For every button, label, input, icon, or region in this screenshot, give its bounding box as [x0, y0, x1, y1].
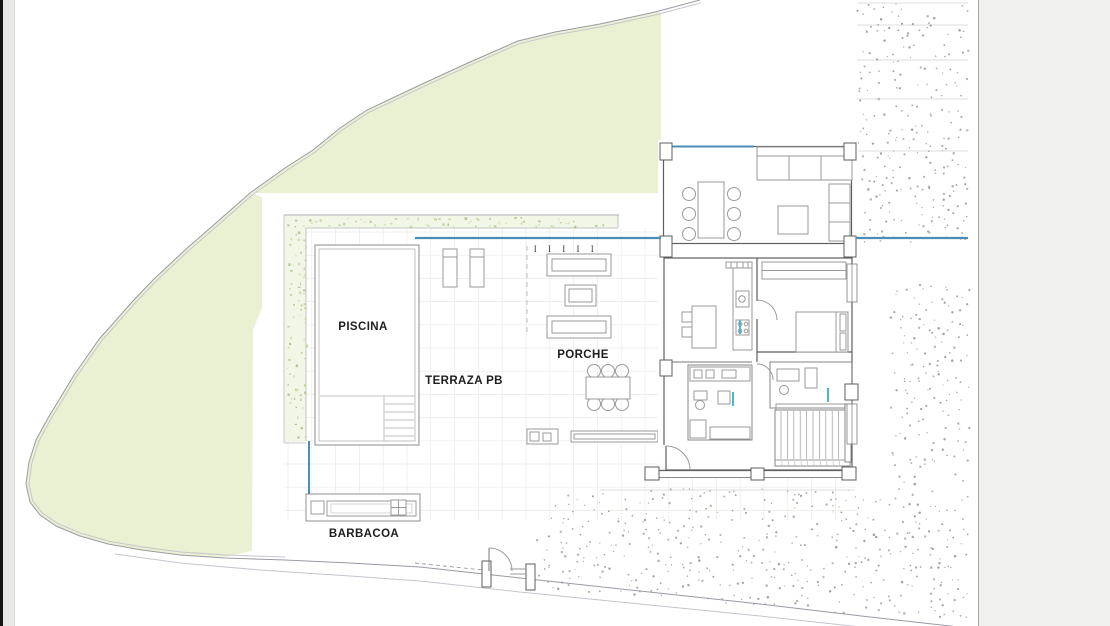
staircase — [775, 404, 851, 466]
hedge-left-band — [285, 228, 306, 442]
outdoor-sofa — [547, 316, 611, 338]
label-porche: PORCHE — [557, 349, 609, 361]
gate-post — [526, 564, 535, 590]
sofa-back — [757, 147, 852, 156]
barbecue-counter — [306, 494, 420, 521]
label-terraza: TERRAZA PB — [425, 375, 503, 387]
dining-table — [698, 182, 724, 238]
outdoor-sofa — [547, 254, 611, 276]
left-film-edge — [0, 0, 3, 626]
coffee-table — [778, 206, 808, 234]
sun-lounger — [443, 249, 457, 287]
chaise-unit — [829, 184, 850, 241]
right-margin — [978, 0, 1110, 626]
label-piscina: PISCINA — [338, 321, 387, 333]
porch-table — [586, 377, 630, 399]
hedge-top-band — [285, 216, 618, 228]
swimming-pool — [315, 245, 419, 445]
pergola-post-marks: I I I I I — [534, 244, 599, 254]
floor-plan-canvas: PISCINA TERRAZA PB PORCHE BARBACOA I I I… — [0, 0, 1110, 626]
left-film-strip — [3, 0, 14, 626]
label-barbacoa: BARBACOA — [329, 528, 399, 540]
gate-post — [482, 561, 491, 587]
outdoor-coffee-table — [565, 285, 596, 306]
bench — [571, 431, 658, 442]
porch-bench-row — [527, 429, 658, 444]
sun-lounger — [470, 249, 484, 287]
floor-plan-page: PISCINA TERRAZA PB PORCHE BARBACOA I I I… — [0, 0, 1110, 626]
sofa — [757, 156, 852, 180]
